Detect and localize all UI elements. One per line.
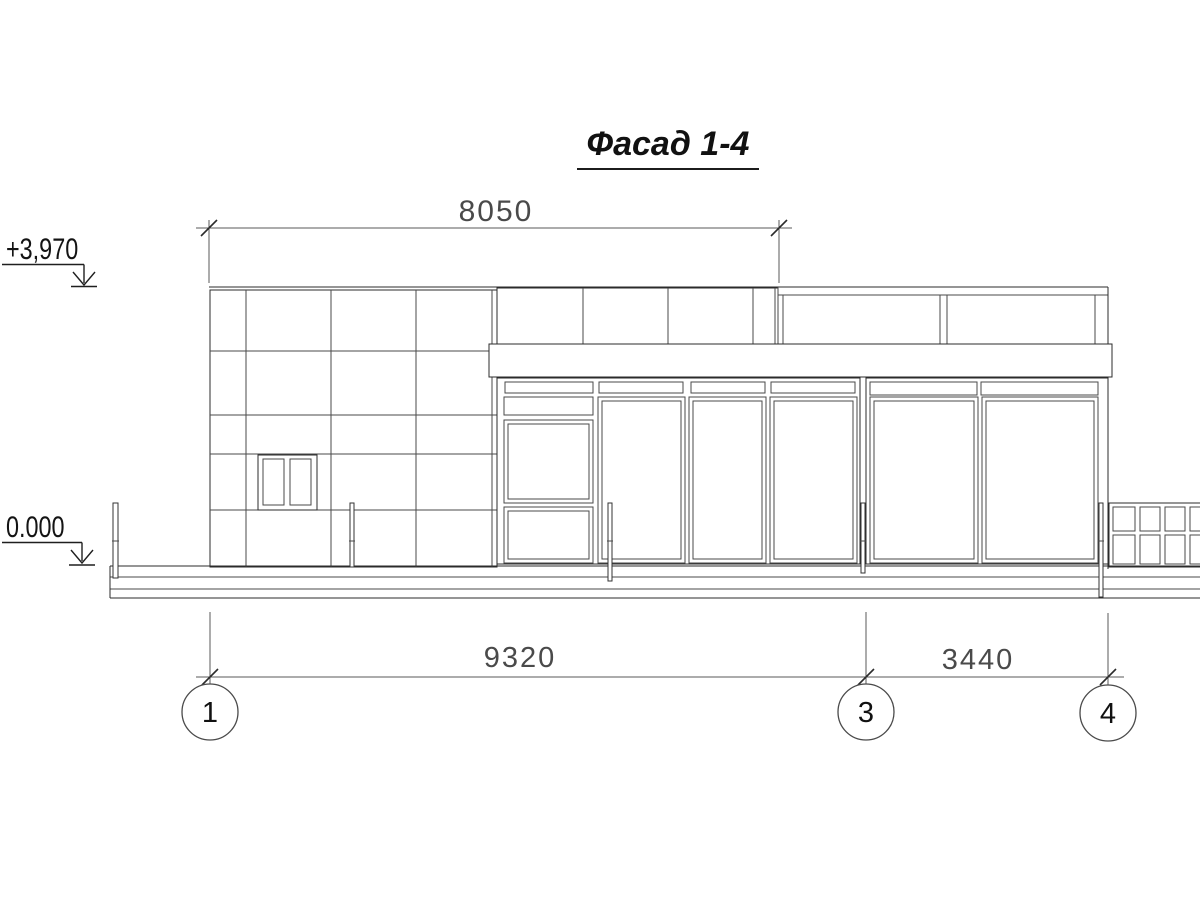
ground-platform [110, 566, 1200, 598]
railing-posts [112, 503, 1104, 597]
drawing-title: Фасад 1-4 [577, 127, 759, 170]
axis-label-1: 1 [192, 698, 228, 728]
railing-post [861, 503, 865, 573]
fascia-band [489, 344, 1112, 377]
elevation-drawing-sheet: Фасад 1-4 8050 +3,970 0.000 9320 3440 1 … [0, 0, 1200, 900]
dimension-label-3-4: 3440 [888, 646, 1068, 675]
glass-bay [770, 397, 857, 563]
side-fence [1109, 503, 1200, 567]
railing-post [1099, 503, 1103, 597]
storefront-right-section [866, 378, 1108, 564]
elevation-roof-label: +3,970 [6, 236, 78, 264]
door-bay [504, 397, 593, 563]
axis-label-4: 4 [1090, 699, 1126, 729]
railing-post [350, 503, 354, 567]
storefront-left-section [497, 378, 860, 564]
roof-parapet [778, 287, 1108, 344]
dimension-label-1-3: 9320 [430, 644, 610, 673]
glass-bay [982, 397, 1098, 563]
top-dimension-label: 8050 [430, 197, 562, 226]
elevation-mark-ground [2, 543, 95, 566]
railing-post [608, 503, 612, 581]
axis-label-3: 3 [848, 698, 884, 728]
clerestory-strip [497, 288, 778, 344]
elevation-ground-label: 0.000 [6, 514, 65, 542]
building-facade [209, 287, 1112, 569]
wall-window [258, 455, 317, 510]
axis-grid [182, 612, 1136, 741]
top-dimension [196, 220, 792, 283]
elevation-mark-roof [2, 265, 97, 287]
glass-bay [870, 397, 978, 563]
glass-bay [689, 397, 766, 563]
